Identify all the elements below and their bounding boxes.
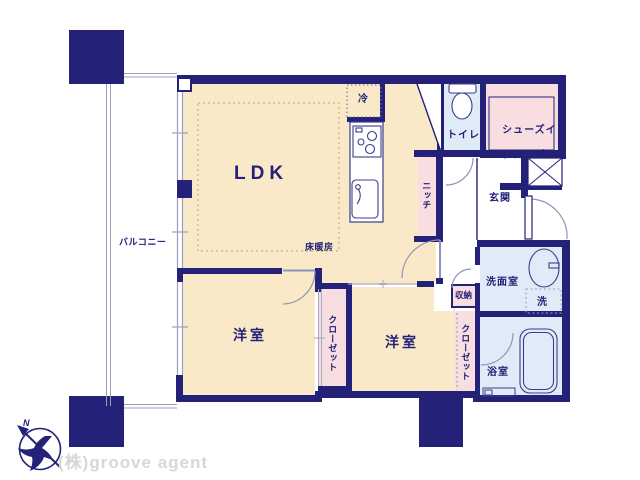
shoe-closet-label-line1: シューズイン (502, 125, 568, 136)
kitchen-diagonal-corner (417, 84, 441, 152)
compass-icon (17, 425, 61, 471)
toilet-label: トイレ (447, 130, 480, 143)
shoe-closet-label-line2: クローゼット (502, 150, 568, 161)
entrance-door-arc (532, 199, 567, 239)
ldk-label: LDK (234, 162, 304, 186)
kitchen-counter (350, 122, 383, 222)
closet-right-label: クローゼット (459, 324, 470, 381)
closet-left-label: クローゼット (326, 315, 337, 372)
floor-heating-label: 床暖房 (305, 242, 334, 253)
bath-counter-icon (483, 388, 515, 396)
entrance-label: 玄関 (489, 193, 511, 206)
storage-label: 収納 (455, 290, 472, 301)
washer-label: 洗 (537, 297, 548, 310)
niche-label: ニッチ (420, 181, 431, 210)
compass-north-label: N (23, 418, 31, 429)
window-strips (172, 92, 188, 375)
balcony-label: バルコニー (119, 237, 166, 248)
toilet-door-arc (446, 158, 473, 185)
refrigerator-label: 冷 (358, 94, 369, 107)
bathroom-door-arc (481, 333, 513, 365)
bedroom-left-door-arc (283, 271, 315, 304)
watermark-text: (株)groove agent (58, 448, 208, 473)
plan-detail-layer (0, 0, 640, 480)
bathroom-label: 浴室 (487, 367, 509, 380)
ldk-door-arc (402, 240, 440, 278)
front-door-icon (525, 196, 532, 239)
closet-left-door-line (314, 289, 325, 386)
shoe-closet-label: シューズイン クローゼット (487, 112, 568, 175)
bedroom-left-label: 洋室 (233, 327, 267, 345)
sliding-partition-line (348, 280, 417, 288)
washroom-label: 洗面室 (486, 277, 519, 290)
toilet-icon (449, 84, 476, 119)
bird-icon (18, 436, 53, 471)
floor-plan: LDK 床暖房 冷 バルコニー 洋室 洋室 クローゼット クローゼット 収納 ニ… (0, 0, 640, 480)
bedroom-right-label: 洋室 (385, 334, 419, 352)
washroom-door-arc (452, 269, 471, 288)
bathtub-icon (520, 329, 557, 393)
washbasin-icon (529, 249, 559, 287)
